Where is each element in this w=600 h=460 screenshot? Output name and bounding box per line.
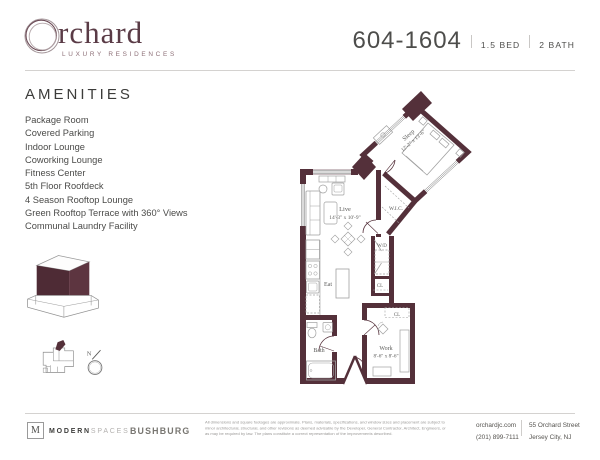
header-rule [25, 70, 575, 71]
address-line2: Jersey City, NJ [529, 432, 580, 444]
brokerage-name: MODERNSPACES [49, 428, 130, 435]
room-label-wd: W/D [377, 244, 387, 249]
room-label-live: Live [339, 206, 351, 213]
amenities-list: Package Room Covered Parking Indoor Loun… [25, 114, 225, 234]
floorplan-sheet: { "header": { "brand": { "name": "Orchar… [0, 0, 600, 460]
amenity-item: 4 Season Rooftop Lounge [25, 194, 225, 207]
disclaimer-text: All dimensions and square footages are a… [205, 420, 449, 438]
room-label-bath: Bath [313, 348, 324, 354]
spec-bath: 2 BATH [539, 40, 575, 50]
spec-divider [471, 35, 472, 48]
key-plan-unit-highlight [55, 340, 65, 351]
compass-label: N [87, 351, 92, 358]
amenities-section: AMENITIES Package Room Covered Parking I… [25, 86, 225, 234]
address-line1: 55 Orchard Street [529, 420, 580, 432]
unit-header: 604-1604 1.5 BED 2 BATH [352, 27, 575, 55]
key-plan [36, 336, 82, 380]
room-dims-live: 14'-3" x 10'-9" [329, 215, 361, 221]
website-link[interactable]: orchardjc.com [476, 422, 516, 429]
amenities-title: AMENITIES [25, 86, 225, 103]
compass-icon: N [84, 348, 106, 378]
amenity-item: Covered Parking [25, 127, 225, 140]
room-label-eat: Eat [324, 282, 332, 288]
amenity-item: 5th Floor Roofdeck [25, 180, 225, 193]
phone-number: (201) 899-7111 [476, 432, 519, 444]
spec-divider [529, 35, 530, 48]
kitchen-area: Eat [306, 240, 349, 315]
spec-bed: 1.5 BED [481, 40, 520, 50]
room-label-cl-work: CL [394, 313, 400, 318]
room-label-wic: W.I.C. [389, 206, 403, 212]
amenity-item: Indoor Lounge [25, 141, 225, 154]
brand-wordmark: rchard [58, 15, 143, 51]
brokerage-monogram: M [27, 422, 44, 439]
building-illustration [24, 250, 102, 330]
amenity-item: Communal Laundry Facility [25, 220, 225, 233]
live-room: Live 14'-3" x 10'-9" [306, 176, 365, 256]
amenity-item: Coworking Lounge [25, 154, 225, 167]
orchard-ring-icon [22, 15, 62, 57]
room-dims-work: 8'-6" x 8'-6" [373, 354, 398, 360]
developer-name: BUSHBURG [130, 426, 190, 436]
footer-rule [25, 413, 575, 414]
brand-logo: rchard LUXURY RESIDENCES [22, 13, 222, 63]
amenity-item: Package Room [25, 114, 225, 127]
address-block: 55 Orchard Street Jersey City, NJ [529, 420, 580, 444]
brand-tagline: LUXURY RESIDENCES [62, 51, 177, 58]
unit-number: 604-1604 [352, 27, 461, 55]
footer-divider [521, 420, 522, 436]
work-room: CL Work 8'-6" x 8'-6" [362, 303, 415, 384]
amenity-item: Fitness Center [25, 167, 225, 180]
room-label-work: Work [379, 346, 392, 352]
amenity-item: Green Rooftop Terrace with 360° Views [25, 207, 225, 220]
room-label-cl-hall: CL [377, 284, 383, 289]
floor-plan: Sleep 12'-2" x 13'-6" W.I.C. W/D C [235, 90, 480, 400]
contact-block: orchardjc.com (201) 899-7111 [476, 420, 519, 444]
washer-dryer-closet: W/D CL [371, 236, 394, 306]
